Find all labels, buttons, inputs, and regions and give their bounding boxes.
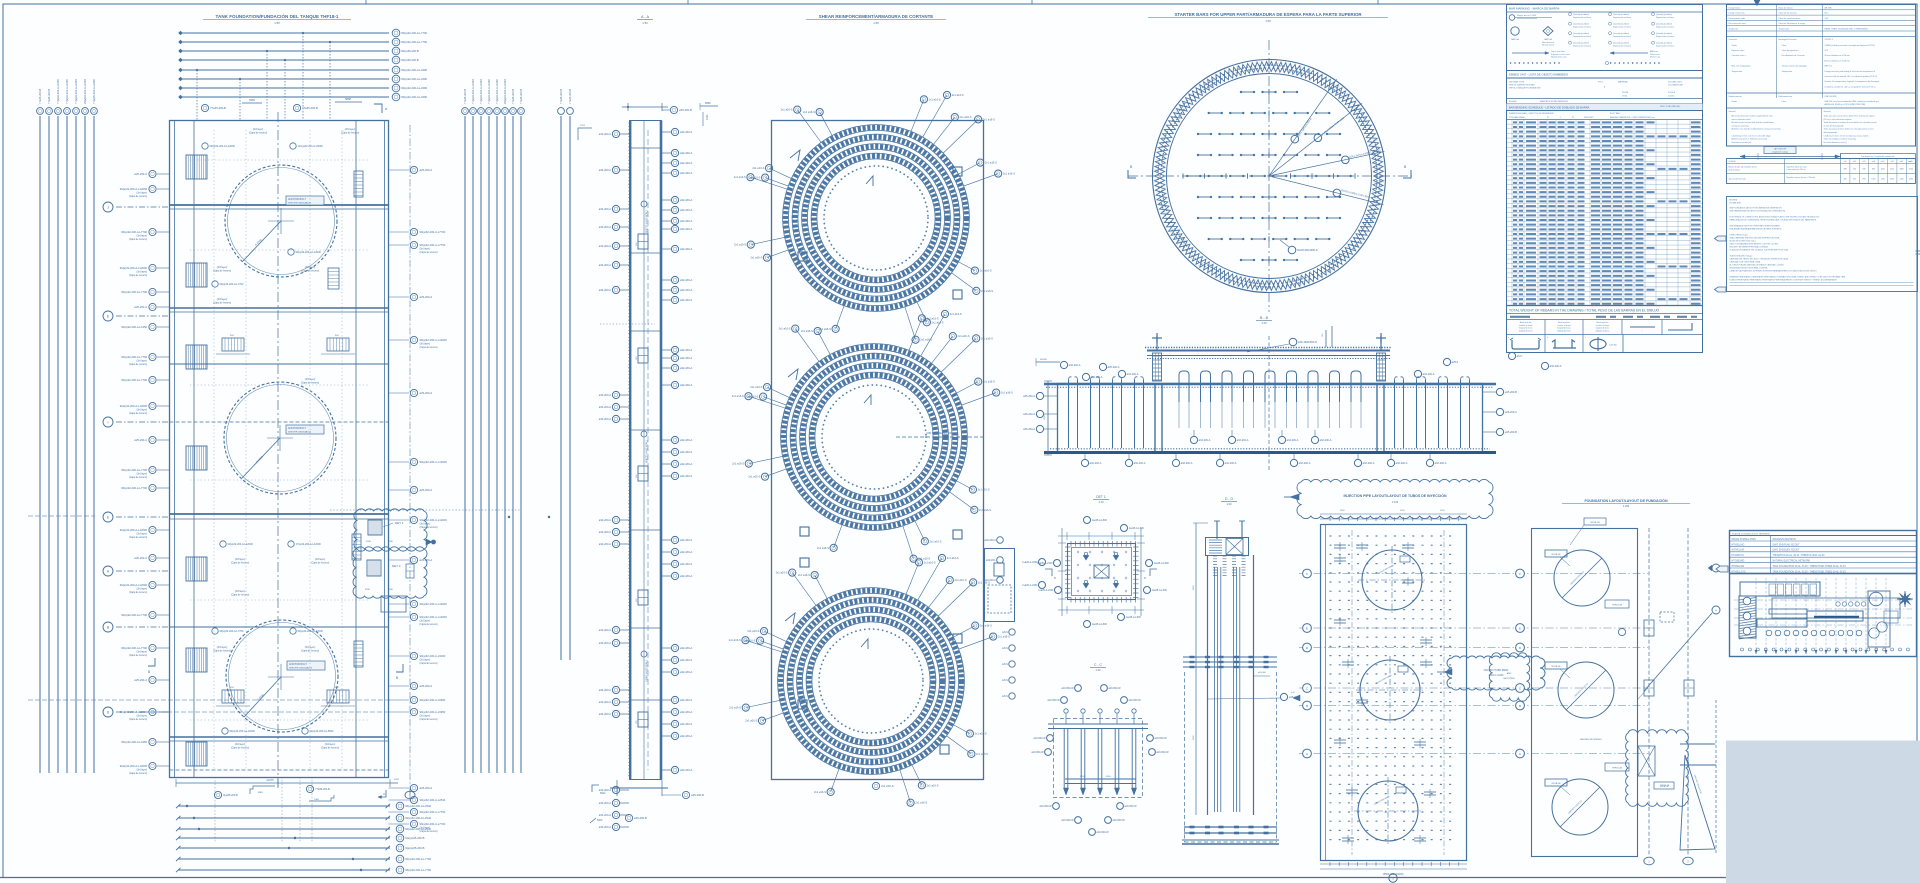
svg-text:77(a)32-200-A-L1994: 77(a)32-200-A-L1994 [479,79,483,104]
svg-text:VOLUMEN UNIT: VOLUMEN UNIT [1668,85,1684,87]
svg-text:mm: mm [1908,161,1911,163]
svg-text:ø32-200-A: ø32-200-A [599,641,612,645]
svg-text:Exposure class: Exposure class [1732,49,1745,52]
svg-text:77ø35-200-B: 77ø35-200-B [210,106,226,110]
svg-text:LAP LENGTH: LAP LENGTH [1774,148,1787,151]
svg-text:17/34: 17/34 [1622,95,1628,97]
svg-text:VOLUME UNIT: VOLUME UNIT [1668,82,1682,84]
svg-text:780: 780 [1863,179,1866,181]
svg-text:90(a)32-200-A-L2390: 90(a)32-200-A-L2390 [401,95,427,99]
svg-text:Hormigon/Concreto: Hormigon/Concreto [1779,38,1798,41]
svg-text:DIMENSIONS (MAX) - SUBTOTLE DE: DIMENSIONS (MAX) - SUBTOTLE DE REFERENCE [1509,112,1555,115]
svg-text:All steel inserts and joint lo: All steel inserts and joint lock shall b… [1732,121,1774,124]
svg-text:Quantity (number): Quantity (number) [1613,13,1629,16]
svg-text:77(a)32-200-A-L1950: 77(a)32-200-A-L1950 [495,79,499,104]
svg-text:90(a)32-200-A-L2390: 90(a)32-200-A-L2390 [401,86,427,90]
svg-text:(Capa de tercero): (Capa de tercero) [301,381,319,384]
svg-text:ø32-200-A: ø32-200-A [1181,462,1193,465]
svg-text:2x1 ø16-S: 2x1 ø16-S [732,462,744,466]
svg-text:29(a)32-200-A-L1994: 29(a)32-200-A-L1994 [83,79,87,104]
svg-text:Max. size of aggregate: Max. size of aggregate [1732,65,1751,68]
svg-text:ANCHOR BOLT: ANCHOR BOLT [288,427,306,430]
svg-text:Separacion en barra: Separacion en barra [1573,45,1592,47]
svg-text:1050: 1050 [1881,169,1885,171]
svg-text:ø25-200-B: ø25-200-B [1505,391,1517,394]
svg-text:7060: 7060 [314,799,320,801]
svg-text:(3rd layer): (3rd layer) [305,646,316,649]
svg-text:SHEAR REINFORCEMENT/ARMADURA D: SHEAR REINFORCEMENT/ARMADURA DE CORTANTE [819,14,933,19]
svg-text:1:50: 1:50 [642,21,648,25]
svg-text:90(a)32-200-A-L7700: 90(a)32-200-A-L7700 [121,355,147,359]
svg-text:(3rd layer): (3rd layer) [235,743,246,746]
svg-text:2x1 ø16-S: 2x1 ø16-S [980,624,992,628]
svg-text:F: F [1306,572,1308,576]
svg-text:SPACES/N REVISION: SPACES/N REVISION [1773,538,1796,541]
svg-text:AND RING BEAM/Y VIGA: AND RING BEAM/Y VIGA [926,432,954,435]
svg-text:ø25-200-A: ø25-200-A [1023,428,1035,431]
svg-text:Basis de diseno: Basis de diseno [1779,7,1794,9]
svg-text:90(a)32-200-A-L7700: 90(a)32-200-A-L7700 [220,283,245,286]
svg-text:(3rd layer): (3rd layer) [420,620,431,623]
svg-text:NOTES: NOTES [1730,200,1738,202]
svg-text:SECURITY BETWEEN PIPES REAL CO: SECURITY BETWEEN PIPES REAL CORRIDA [1730,246,1769,249]
svg-text:longitud de barra: longitud de barra [1596,327,1610,330]
svg-text:(Capa de tercero): (Capa de tercero) [213,301,231,304]
svg-text:(Capa de tercero): (Capa de tercero) [301,269,319,272]
svg-text:DET 1: DET 1 [1096,495,1106,499]
svg-text:Temperatura: Temperatura [1782,70,1794,73]
svg-text:2x1 ø16-S: 2x1 ø16-S [955,578,967,582]
svg-text:NSF mm: NSF mm [1825,66,1833,68]
svg-text:Separacion en barra: Separacion en barra [1656,26,1675,28]
svg-text:2x1 ø16-S: 2x1 ø16-S [930,539,942,543]
svg-text:ø32-200-A: ø32-200-A [1134,462,1146,465]
svg-text:Clase: Clase [1782,101,1787,103]
svg-text:1310: 1310 [1890,169,1894,171]
svg-text:ø32-200-A: ø32-200-A [1435,462,1447,465]
svg-text:ø32-200-A: ø32-200-A [680,161,693,165]
svg-text:ø32-200-A: ø32-200-A [599,825,612,829]
svg-text:840: 840 [1872,169,1875,171]
svg-text:ø32-200-A: ø32-200-A [1090,462,1102,465]
svg-text:INJECTION PIPE LAYOUT/LAYOUT D: INJECTION PIPE LAYOUT/LAYOUT DE TUBOS DE… [1343,493,1446,498]
svg-text:1754: 1754 [580,125,586,127]
svg-text:90(a)32-200-A-L12000: 90(a)32-200-A-L12000 [296,251,322,254]
svg-text:1.003 C: 1.003 C [1668,95,1676,97]
svg-text:A: A [1306,752,1308,756]
svg-text:Todas las juntas constructivas: Todas las juntas constructivas deben ten… [1824,115,1876,118]
svg-text:GROUTING: GROUTING [1503,678,1515,680]
svg-text:90(a)32-200-A-L12000: 90(a)32-200-A-L12000 [420,615,448,619]
svg-text:SPACE STRING/ ASSN: SPACE STRING/ ASSN [1732,538,1757,541]
svg-text:(3rd layer): (3rd layer) [235,590,246,593]
svg-text:THF18-1 TANQUE FOUNDATIONS: THF18-1 TANQUE FOUNDATIONS [1509,87,1541,90]
svg-text:AND: AND [1507,672,1512,675]
svg-text:casting of concreting: casting of concreting [1732,124,1749,127]
svg-text:General: General [1824,111,1832,113]
svg-text:ALIGN GROUTING HOLE 150 g: ALIGN GROUTING HOLE 150 g [1730,240,1756,243]
svg-text:longitud de barra: longitud de barra [1519,327,1533,330]
svg-text:Regule bar to I L0994: Regule bar to I L0994 [1517,14,1537,17]
svg-text:ø29-200-A: ø29-200-A [985,539,997,542]
svg-text:9865: 9865 [258,792,264,794]
svg-text:380: 380 [1844,169,1847,171]
svg-text:2x1 ø16-S: 2x1 ø16-S [1003,172,1015,176]
svg-text:B: B [148,670,150,674]
svg-text:xxxxxxxxxxxxxxxxxxxx: xxxxxxxxxxxxxxxxxxxx [1517,18,1537,20]
svg-text:2x1 ø16-S: 2x1 ø16-S [927,316,939,320]
svg-text:SEE SEPARATE DWG FOR UPPER PAR: SEE SEPARATE DWG FOR UPPER PART REINFORC… [1730,225,1781,228]
svg-text:ø16-500-W: ø16-500-W [1109,687,1122,690]
svg-text:a/6-S: a/6-S [1002,696,1008,698]
svg-text:(3rd layer): (3rd layer) [217,298,228,301]
svg-text:(3rd layer): (3rd layer) [137,409,148,412]
svg-text:Chaflanes 15 mm x 15 mm en tod: Chaflanes 15 mm x 15 mm en todas las ari… [1824,134,1869,137]
svg-text:ø16-500-W: ø16-500-W [1062,819,1075,822]
svg-text:2x1 ø16-S: 2x1 ø16-S [1001,391,1013,395]
svg-text:ø32-200-A: ø32-200-A [680,450,693,454]
svg-text:(Capa de tercero): (Capa de tercero) [420,346,438,349]
svg-text:50 mm cobertura en el 50 mm: 50 mm cobertura en el 50 mm [1825,54,1851,57]
svg-text:1:10: 1:10 [1098,500,1104,504]
svg-text:Grade: Grade [1732,44,1737,47]
svg-text:77ø35-200-A-L8900: 77ø35-200-A-L8900 [645,660,648,682]
svg-text:90(a)32-200-A-L12000: 90(a)32-200-A-L12000 [120,583,148,587]
svg-text:Recubrimiento de Concrete: Recubrimiento de Concrete [1782,54,1805,57]
svg-text:2x1 ø16-S: 2x1 ø16-S [801,329,813,333]
svg-text:2x1 ø16-S: 2x1 ø16-S [745,719,757,723]
svg-text:(3rd layer): (3rd layer) [137,271,148,274]
svg-text:77ø35-200-B: 77ø35-200-B [559,89,563,104]
svg-text:(Capa de tercero): (Capa de tercero) [420,718,438,721]
svg-text:ø32-200-A: ø32-200-A [599,518,612,522]
svg-text:ø32-200-A: ø32-200-A [1320,439,1332,442]
svg-text:I: I [108,420,109,424]
svg-text:SEE FOUNDATION LAYOUT FOR DIME: SEE FOUNDATION LAYOUT FOR DIMENSIONS ORI… [1730,207,1783,210]
svg-text:PADM. THB67 2/535/5080 UNIT 1: PADM. THB67 2/535/5080 UNIT 1 THB0958/00… [1825,28,1869,31]
svg-text:(3rd layer): (3rd layer) [137,588,148,591]
svg-text:2x1 ø16-S: 2x1 ø16-S [998,635,1010,639]
svg-text:PLANTA CONVENCION N. REFEREN: PLANTA CONVENCION N. REFEREN [1732,532,1770,535]
svg-text:90(a)32-200-A-L7700: 90(a)32-200-A-L7700 [121,378,147,382]
svg-text:ø32-200-A: ø32-200-A [680,538,693,542]
svg-text:ø32-200-A: ø32-200-A [680,710,693,714]
svg-text:longitud de barra: longitud de barra [1557,327,1571,330]
svg-text:ø32: ø32 [1900,161,1903,163]
svg-text:(3rd layer): (3rd layer) [420,248,431,251]
svg-text:ø32-200-A: ø32-200-A [680,219,693,223]
svg-text:ø16-500-W: ø16-500-W [1113,819,1126,822]
svg-text:ø20-200-A: ø20-200-A [985,579,997,582]
svg-text:90(a)32-200-A-L12000: 90(a)32-200-A-L12000 [120,764,148,768]
svg-text:a/6-S: a/6-S [1002,680,1008,682]
svg-text:2x1 ø16-S: 2x1 ø16-S [748,176,760,180]
svg-text:Temperature: Temperature [1732,70,1743,73]
svg-text:a/6-S: a/6-S [1002,632,1008,634]
svg-text:W21B-1B: W21B-1B [1552,783,1562,785]
svg-text:650: 650 [1853,179,1856,181]
svg-text:5868: 5868 [705,102,711,105]
svg-text:ø32-200-A: ø32-200-A [599,244,612,248]
svg-text:ø32-200-A: ø32-200-A [599,628,612,632]
svg-text:1xø25-A-L500: 1xø25-A-L500 [1038,589,1054,592]
svg-text:(3rd layer): (3rd layer) [345,128,356,131]
svg-text:a/6-S: a/6-S [1002,664,1008,666]
svg-text:E: E [1519,626,1521,630]
svg-text:(Capa de tercero): (Capa de tercero) [129,718,147,721]
svg-text:UNIT BAR TYPE: UNIT BAR TYPE [1509,81,1525,84]
svg-text:C - C: C - C [1094,663,1102,667]
svg-text:90(a)32-200-A-L7700: 90(a)32-200-A-L7700 [121,290,147,294]
svg-text:L: L [1642,331,1643,333]
svg-text:3030: 3030 [388,541,394,543]
svg-text:CANTIDAD CON VIGOR REAL CAGA: CANTIDAD CON VIGOR REAL CAGA [1730,261,1761,264]
svg-text:(Capa de tercero): (Capa de tercero) [213,269,231,272]
svg-text:ø35-200-B: ø35-200-B [679,108,692,112]
svg-text:90(a)32-200-A-L2390: 90(a)32-200-A-L2390 [401,77,427,81]
svg-text:Quantity (number): Quantity (number) [1656,13,1672,16]
svg-text:1:20: 1:20 [1226,502,1232,506]
svg-text:77(a)32-200-A-L1994: 77(a)32-200-A-L1994 [74,79,78,104]
svg-text:2M16 L=1630: 2M16 L=1630 [1489,674,1504,677]
svg-text:Quantity (number): Quantity (number) [1573,42,1589,45]
svg-text:(Capa de tercero): (Capa de tercero) [301,649,319,652]
svg-text:Top or near Face: Top or near Face [1551,50,1565,53]
svg-text:PESO TOTAL (PARCIAL): PESO TOTAL (PARCIAL) [1660,105,1681,108]
svg-text:Separacion en barra: Separacion en barra [1656,36,1675,38]
svg-text:ø32-200-A: ø32-200-A [680,438,693,442]
svg-text:Bend mark bar: Bend mark bar [1558,322,1570,324]
svg-text:Todos los pernos e insertos de: Todos los pernos e insertos de acero deb… [1824,121,1877,124]
svg-text:90(a)32-200-A-L6950: 90(a)32-200-A-L6950 [420,698,446,702]
svg-text:THF18-1B: THF18-1B [1612,768,1623,770]
svg-text:ø32-200-A: ø32-200-A [680,646,693,650]
svg-text:90(a)32-200-A-L12000: 90(a)32-200-A-L12000 [420,602,448,606]
svg-text:ø32-200-A: ø32-200-A [680,550,693,554]
svg-text:(Capa de tercero): (Capa de tercero) [129,476,147,479]
svg-text:All plates sure shall be insta: All plates sure shall be installed befor… [1732,128,1781,131]
svg-text:(3rd layer): (3rd layer) [420,523,431,526]
svg-text:J: J [107,205,109,209]
svg-text:ø32-200-A: ø32-200-A [680,278,693,282]
svg-text:77(a)32-200-A-L1950: 77(a)32-200-A-L1950 [65,79,69,104]
svg-text:90(a)32-200-A-L12000: 90(a)32-200-A-L12000 [210,145,236,148]
svg-text:(Capa de tercero): (Capa de tercero) [129,536,147,539]
svg-text:2x1 ø16-S: 2x1 ø16-S [734,243,746,247]
svg-text:1:10: 1:10 [1261,321,1267,325]
svg-text:ø32-200-A: ø32-200-A [1550,365,1562,368]
svg-text:unless otherwise noted: unless otherwise noted [1732,118,1751,121]
svg-text:90(a)32-200-A-L2540: 90(a)32-200-A-L2540 [405,804,431,808]
svg-text:(Capa de tercero): (Capa de tercero) [129,772,147,775]
svg-text:90(a)32-200-A-L12000: 90(a)32-200-A-L12000 [120,187,148,191]
svg-text:ø32-200-A: ø32-200-A [599,813,612,817]
svg-text:del hormigonado: del hormigonado [1824,131,1838,134]
svg-text:2x1 ø16-S: 2x1 ø16-S [803,110,815,114]
svg-text:(3rd layer): (3rd layer) [137,235,148,238]
svg-text:no debera exceder los +30 C y: no debera exceder los +30 C y un gradien… [1825,85,1876,88]
svg-text:ø16-500-W: ø16-500-W [1125,805,1138,808]
svg-text:EMBED UNIT - LISTA DE OBJETO E: EMBED UNIT - LISTA DE OBJETO EMBEBIDO [1509,73,1569,77]
svg-text:1:20: 1:20 [1095,668,1101,672]
svg-text:ø32-200-A: ø32-200-A [1199,439,1211,442]
svg-text:(3rd layer): (3rd layer) [420,343,431,346]
svg-text:Quantity (number): Quantity (number) [1656,42,1672,45]
svg-text:D - D: D - D [1225,497,1233,501]
svg-text:ø32-200-A: ø32-200-A [599,168,612,172]
svg-text:(3rd layer): (3rd layer) [137,715,148,718]
svg-text:SHALL MATERIAL PRE S355 JR0 59: SHALL MATERIAL PRE S355 JR0 5980 SUPERIO… [1730,237,1780,240]
svg-text:77(a)32-200-A-L1994: 77(a)32-200-A-L1994 [471,79,475,104]
svg-text:A - A: A - A [641,15,649,19]
svg-text:ø32-200-A: ø32-200-A [1225,462,1237,465]
svg-text:ø32-200-A: ø32-200-A [680,208,693,212]
svg-text:2x1 ø16-S: 2x1 ø16-S [729,638,741,642]
svg-text:9(a)(a)35-200-B: 9(a)(a)35-200-B [405,836,424,840]
svg-text:ø25-200-B: ø25-200-B [634,816,647,820]
svg-text:(Capa de tercero): (Capa de tercero) [231,593,249,596]
svg-text:(Capa de tercero): (Capa de tercero) [213,649,231,652]
svg-text:2x1 ø16-S: 2x1 ø16-S [746,395,758,399]
svg-text:ø25-200-A: ø25-200-A [420,168,433,172]
svg-text:1:200: 1:200 [1623,505,1630,508]
svg-text:Development code: Development code [1729,17,1747,20]
svg-text:Bend mark bar: Bend mark bar [1597,322,1609,324]
svg-text:PESO/UNIT: PESO/UNIT [1584,117,1595,119]
svg-text:Separacion en barra: Separacion en barra [1573,36,1592,38]
svg-text:HTGB0SYS: HTGB0SYS [1732,555,1745,557]
svg-text:File structures steel: File structures steel [1729,22,1747,25]
svg-text:PLACA DE LECHADA EN THE 150 AD: PLACA DE LECHADA EN THE 150 ADDIT TUE PI… [1730,249,1789,252]
svg-text:Clase de populacion: Clase de populacion [1782,50,1799,52]
svg-text:b: b [1547,337,1548,339]
svg-text:3030: 3030 [366,541,372,543]
svg-text:1xø25-A-L500: 1xø25-A-L500 [1126,616,1142,619]
svg-text:BENDING DIMENSIONS - DOBLE DIM: BENDING DIMENSIONS - DOBLE DIMENSIONES m… [1610,117,1655,119]
svg-text:doblado de barra: doblado de barra [1596,330,1610,332]
svg-text:Bottom & side, Top of bottom: Bottom & side, Top of bottom levels [1729,166,1757,169]
svg-text:Separacion en barra: Separacion en barra [1613,17,1632,19]
svg-text:(3rd layer): (3rd layer) [420,659,431,662]
svg-text:Chamfering 15 mm x 15 mm on al: Chamfering 15 mm x 15 mm on all visible … [1732,134,1771,137]
svg-text:ø32-200-A: ø32-200-A [680,247,693,251]
svg-text:General: General [1729,111,1737,113]
svg-text:(Capa de tercero): (Capa de tercero) [420,662,438,665]
svg-text:ø26-1900/500-D: ø26-1900/500-D [1298,340,1317,344]
svg-text:1xø25-A-L500: 1xø25-A-L500 [1092,623,1108,626]
svg-text:All construction joints shall: All construction joints shall be roughen… [1732,115,1774,118]
svg-text:ø10: ø10 [1853,161,1856,163]
svg-text:ø25-200-A: ø25-200-A [420,391,433,395]
svg-text:(Capa de tercero): (Capa de tercero) [311,561,329,564]
svg-text:29(a)32-200-A-L1994: 29(a)32-200-A-L1994 [503,79,507,104]
svg-text:number of shape: number of shape [1596,325,1610,327]
svg-text:SEGURIDAD ENTRE TUBOS REAL COR: SEGURIDAD ENTRE TUBOS REAL CORRIDA [1730,267,1769,270]
svg-text:77ø35-200-B: 77ø35-200-B [38,89,42,104]
svg-text:ø32-200-A: ø32-200-A [680,288,693,292]
svg-text:ø16-500-W: ø16-500-W [1048,699,1061,702]
svg-text:All dimension given in millime: All dimension given in millimeters (mm) … [1732,138,1768,141]
svg-text:ø25-200-A: ø25-200-A [420,295,433,299]
svg-text:Clase: Clase [1782,45,1787,47]
svg-text:2x1 ø16-S: 2x1 ø16-S [915,801,927,805]
svg-text:90(a)32-200-A-L7700: 90(a)32-200-A-L7700 [405,868,431,872]
svg-text:N°: N° [1547,117,1549,119]
svg-text:Bend mark bar: Bend mark bar [1520,322,1532,324]
svg-text:D: D [1054,576,1056,580]
svg-text:ø16-500-W: ø16-500-W [1097,831,1110,834]
svg-text:ø32-200-A: ø32-200-A [680,227,693,231]
svg-text:Grade: Grade [1732,100,1737,103]
svg-text:90(a)32-200-A-L12000: 90(a)32-200-A-L12000 [120,528,148,532]
svg-text:ø25-0: ø25-0 [1452,361,1459,364]
svg-text:9(a)35-200-B: 9(a)35-200-B [223,794,238,797]
svg-text:ø32-200-A: ø32-200-A [1237,439,1249,442]
svg-text:Top of 1,000 mm side: Top of 1,000 mm side [1729,179,1746,181]
svg-text:2x1 ø16-S: 2x1 ø16-S [776,571,788,575]
svg-text:Quantity (number): Quantity (number) [1573,32,1589,35]
svg-text:Concrete: Concrete [1729,38,1738,41]
svg-text:21075: 21075 [266,778,274,782]
svg-text:Refuerzo/acero: Refuerzo/acero [1779,96,1794,98]
svg-text:77ø35-200-B: 77ø35-200-B [463,89,467,104]
svg-text:Trademark: Trademark [1729,29,1739,31]
svg-text:AL TUBOS PLACAS CANTIDAD LECHA: AL TUBOS PLACAS CANTIDAD LECHADA Y CANTI… [1730,264,1785,267]
svg-text:Design Basis: Design Basis [1729,7,1741,9]
svg-text:(Capa de tercero): (Capa de tercero) [420,251,438,254]
svg-text:Clave de Resistencia la carga: Clave de Resistencia la carga [1779,22,1806,25]
svg-text:W21B-1B: W21B-1B [1590,522,1600,524]
svg-text:elevations in meters (m): elevations in meters (m) [1732,141,1752,144]
svg-text:500: 500 [1853,169,1856,171]
svg-text:5000: 5000 [597,819,603,822]
svg-text:C30/37-1: C30/37-1 [1825,39,1834,41]
svg-text:1050: 1050 [1871,179,1875,181]
svg-text:5969: 5969 [249,98,255,102]
svg-text:FOR DETAILS OF CONNECTIONS, AN: FOR DETAILS OF CONNECTIONS, ANCHOR BOLTS… [1730,216,1821,219]
svg-text:ø32-200-A: ø32-200-A [680,768,693,772]
svg-text:ø32-200-A: ø32-200-A [599,393,612,397]
svg-text:1310: 1310 [1881,179,1885,181]
svg-text:Non structural: Non structural [1542,41,1554,44]
svg-text:ø25-200-A: ø25-200-A [420,488,433,492]
svg-text:ø32-200-A: ø32-200-A [599,207,612,211]
svg-text:2100: 2100 [1900,179,1904,181]
svg-text:(3rd layer): (3rd layer) [420,715,431,718]
svg-text:concrete shall not exceed +30: concrete shall not exceed +30 C at refer… [1825,75,1878,78]
svg-text:2x1 ø16-S: 2x1 ø16-S [958,334,970,338]
svg-text:ø32-200-A: ø32-200-A [680,151,693,155]
svg-text:SEE/VER 30B01AA015: SEE/VER 30B01AA015 [288,431,312,434]
svg-text:90(a)32-200-A-L7700: 90(a)32-200-A-L7700 [405,857,431,861]
svg-text:A: A [1519,752,1521,756]
svg-text:ø32-200-A: ø32-200-A [680,130,693,134]
svg-text:ø25: ø25 [1891,161,1894,163]
svg-text:THF60/THIS 30-AL -30.-B - THB0: THF60/THIS 30-AL -30.-B - THB0SYS 30-B.-… [1773,554,1826,557]
svg-text:90(a)32-200-A-L7700: 90(a)32-200-A-L7700 [420,230,446,234]
svg-text:UNE 500, muy los estandiad del: UNE 500, muy los estandiad del UNE, cuan… [1825,100,1879,103]
svg-text:ø20-200-: ø20-200- [986,559,996,562]
svg-text:1xø25-A-L500: 1xø25-A-L500 [1022,584,1038,587]
svg-text:ø32-200-A: ø32-200-A [599,801,612,805]
svg-text:Design structurals: Design structurals [1729,12,1745,15]
svg-text:90(a)32-200-A-L7700: 90(a)32-200-A-L7700 [121,468,147,472]
svg-text:ø32-200-A: ø32-200-A [680,462,693,466]
svg-text:Separacion en barra: Separacion en barra [1613,45,1632,47]
svg-text:(2nd and last): (2nd and last) [1729,169,1740,172]
svg-text:ø32-200-A: ø32-200-A [680,670,693,674]
svg-text:NOTAS (ES): NOTAS (ES) [1730,202,1742,205]
